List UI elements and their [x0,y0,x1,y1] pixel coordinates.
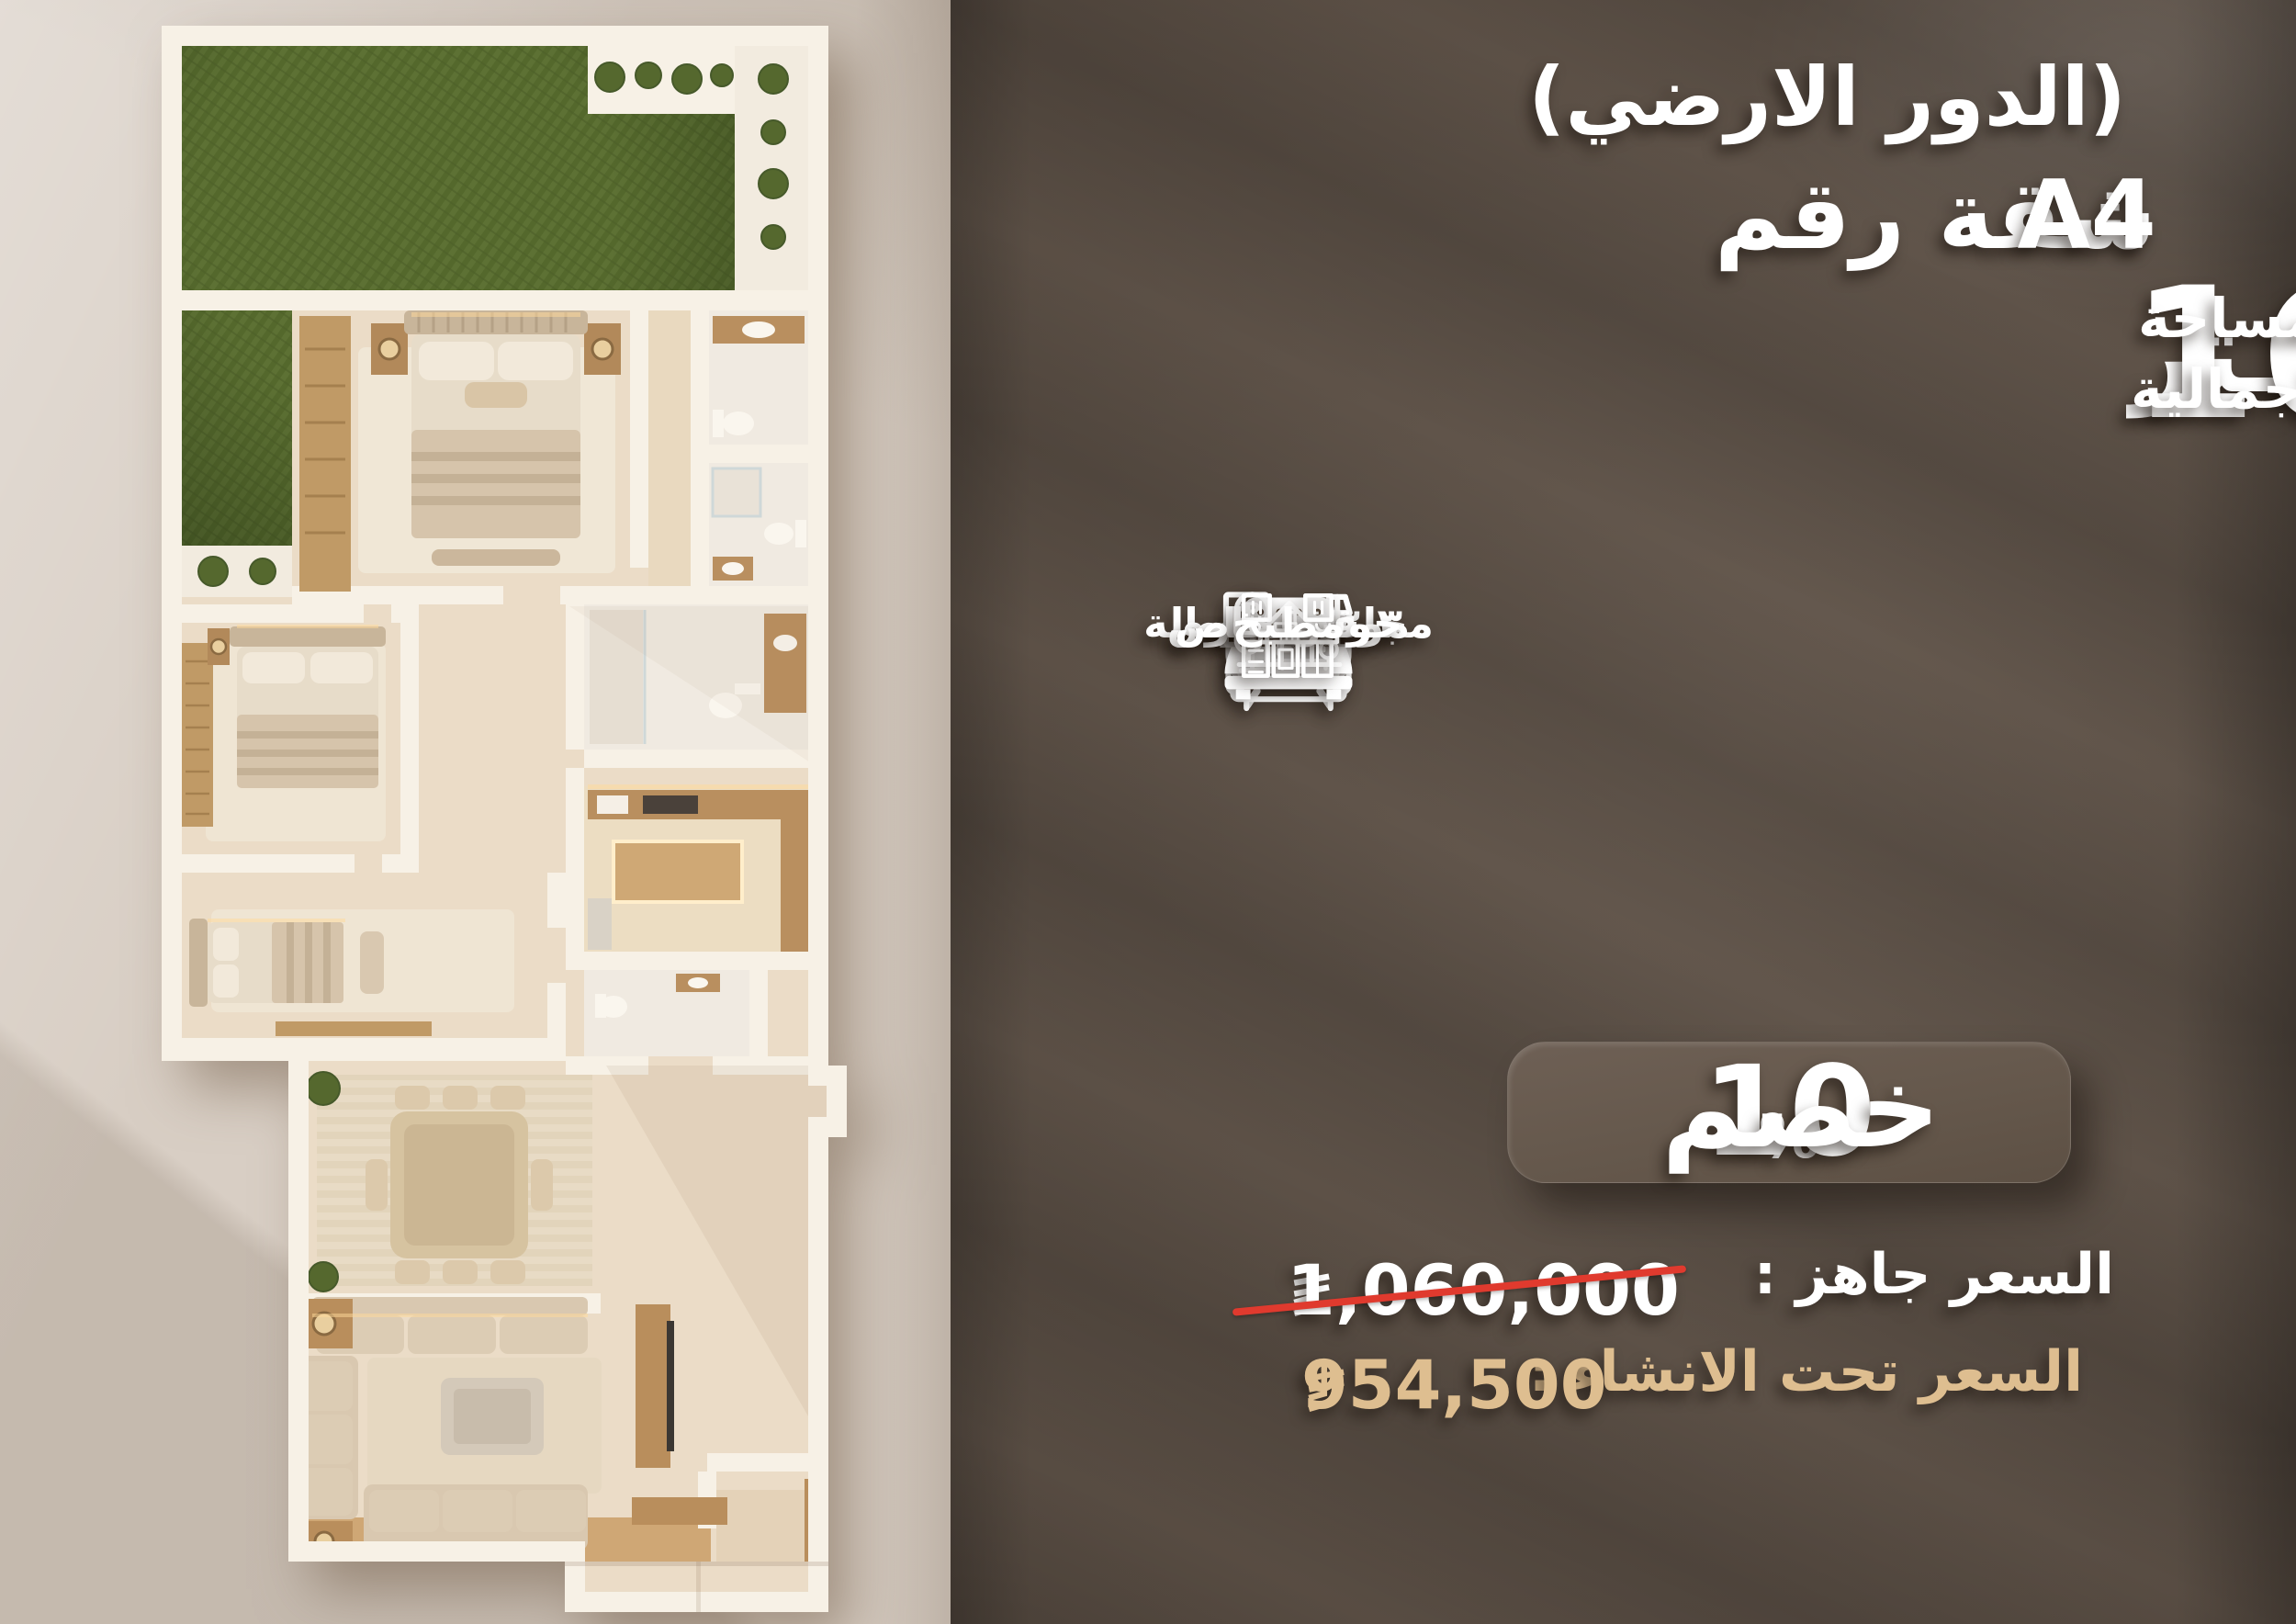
floorplan-image [0,0,951,1624]
saudi-riyal-icon [1301,1359,1349,1413]
floor-title: (الدور الارضي) [1528,53,2126,142]
price-ready-label: السعر جاهز : [1754,1242,2114,1307]
discount-badge: % 10 خصم [1507,1042,2071,1183]
poster: (الدور الارضي) شقة رقم A4 مـتر 166 المسا… [0,0,2296,1624]
price-under-construction-label: السعر تحت الانشاء : [1529,1339,2083,1404]
area-label: المساحة الاجمالية [2131,284,2296,424]
feature-label: مطبخ [1232,599,1345,648]
discount-word: خصم [1661,1052,1941,1164]
price-ready-value: 1,060,000 [1287,1249,1680,1331]
price-under-construction-value: 954,500 [1301,1347,1607,1425]
info-panel: (الدور الارضي) شقة رقم A4 مـتر 166 المسا… [951,0,2296,1624]
floorplan-pane [0,0,951,1624]
